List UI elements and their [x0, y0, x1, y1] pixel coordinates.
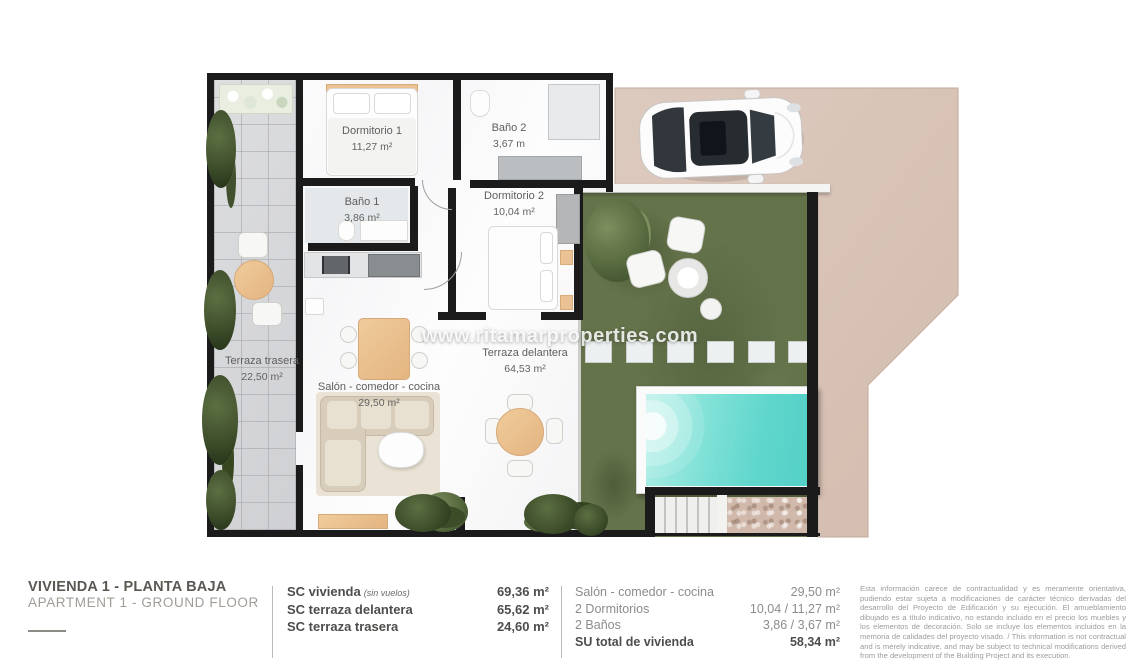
room-area: 3,86 m²: [322, 211, 402, 227]
room-area: 11,27 m²: [312, 140, 432, 156]
wall-bath2-dorm2: [470, 180, 613, 188]
room-area: 10,04 m²: [454, 205, 574, 221]
toilet: [470, 90, 490, 117]
plant: [206, 110, 236, 188]
row-label: 2 Dormitorios: [575, 602, 649, 616]
row-label: SC terraza delantera: [287, 602, 413, 617]
stepping-stone: [707, 341, 734, 363]
plan-title-en: APARTMENT 1 - GROUND FLOOR: [28, 595, 259, 610]
room-name: Salón - comedor - cocina: [299, 380, 459, 396]
watermark: www.ritamarproperties.com: [420, 325, 700, 348]
plant: [204, 270, 236, 350]
pillow: [540, 270, 553, 302]
garden-plant: [574, 504, 608, 536]
car-top-view: [638, 87, 806, 188]
row-value: 10,04 / 11,27 m²: [750, 602, 840, 616]
patio-table: [496, 408, 544, 456]
stepping-stone: [748, 341, 775, 363]
floor-plan-page: Dormitorio 1 11,27 m² Baño 2 3,67 m Dorm…: [0, 0, 1130, 665]
swimming-pool: [646, 394, 808, 486]
plant: [206, 470, 236, 530]
row-value: 24,60 m²: [497, 619, 549, 634]
room-label-bano-2: Baño 2 3,67 m: [469, 121, 549, 152]
exterior-steps: [655, 497, 717, 533]
shower: [548, 84, 600, 140]
room-name: Baño 1: [322, 195, 402, 211]
patio-chair: [546, 418, 563, 444]
row-note: (sin vuelos): [364, 588, 410, 598]
wall-dorm1-right: [453, 80, 461, 180]
room-label-salon: Salón - comedor - cocina 29,50 m²: [299, 380, 459, 411]
legal-disclaimer: Esta información carece de contractualid…: [860, 584, 1126, 663]
row-value: 58,34 m²: [790, 635, 840, 649]
plant: [524, 494, 582, 534]
footer-divider: [561, 586, 562, 658]
room-label-bano-1: Baño 1 3,86 m²: [322, 195, 402, 226]
room-name: Dormitorio 1: [312, 124, 432, 140]
table-row: 2 Dormitorios 10,04 / 11,27 m²: [575, 602, 840, 619]
info-footer: VIVIENDA 1 - PLANTA BAJA APARTMENT 1 - G…: [0, 575, 1130, 665]
title-underline: [28, 630, 66, 632]
row-value: 29,50 m²: [791, 585, 840, 599]
table-row: Salón - comedor - cocina 29,50 m²: [575, 585, 840, 602]
table-row: SC terraza trasera 24,60 m²: [287, 619, 549, 637]
wall-bath1-bottom: [308, 243, 412, 251]
room-label-terraza-delantera: Terraza delantera 64,53 m²: [455, 346, 595, 377]
table-row-total: SU total de vivienda 58,34 m²: [575, 635, 840, 652]
wall-terrace-interior-b: [296, 465, 303, 530]
wall-steps-frame-top: [645, 487, 820, 495]
dining-chair: [340, 352, 357, 369]
terrace-chair: [238, 232, 268, 258]
garden-stool: [700, 298, 722, 320]
row-label: SC vivienda(sin vuelos): [287, 584, 410, 599]
pergola-beam: [578, 184, 830, 193]
plant: [202, 375, 238, 465]
steps-gravel-divider: [717, 495, 727, 533]
footer-divider: [272, 586, 273, 658]
room-name: Baño 2: [469, 121, 549, 137]
room-name: Terraza trasera: [207, 354, 317, 370]
garden-table: [668, 258, 708, 298]
coffee-table: [378, 432, 424, 468]
wall-dorm1-bottom: [303, 178, 415, 186]
room-area: 64,53 m²: [455, 362, 595, 378]
bath-vanity: [498, 156, 582, 180]
patio-chair: [507, 460, 533, 477]
room-name: Terraza delantera: [455, 346, 595, 362]
stove: [322, 256, 350, 274]
wall-garden-right: [807, 192, 818, 537]
terrace-chair: [252, 302, 282, 326]
plan-title-es: VIVIENDA 1 - PLANTA BAJA: [28, 579, 226, 595]
room-label-dormitorio-2: Dormitorio 2 10,04 m²: [454, 189, 574, 220]
wall-right-top: [606, 73, 613, 192]
dining-chair: [340, 326, 357, 343]
pillow: [333, 93, 370, 114]
row-value: 65,62 m²: [497, 602, 549, 617]
garden-armchair: [665, 215, 706, 255]
row-label: Salón - comedor - cocina: [575, 585, 714, 599]
dining-table: [358, 318, 410, 380]
pillow: [540, 232, 553, 264]
sideboard: [318, 514, 388, 529]
kitchen-cabinet: [368, 254, 420, 277]
room-label-dormitorio-1: Dormitorio 1 11,27 m²: [312, 124, 432, 155]
row-label: SC terraza trasera: [287, 619, 398, 634]
wall-dorm2-bottom-left: [438, 312, 486, 320]
row-value: 69,36 m²: [497, 584, 549, 599]
room-area: 29,50 m²: [299, 396, 459, 412]
round-table: [234, 260, 274, 300]
wall-bath1-right: [410, 186, 418, 251]
wall-dorm2-bottom-right: [541, 312, 583, 320]
table-row: SC terraza delantera 65,62 m²: [287, 602, 549, 620]
nightstand: [560, 250, 573, 265]
nightstand: [560, 295, 573, 310]
plant: [395, 494, 451, 532]
sofa-cushion: [325, 440, 361, 486]
pillow: [374, 93, 411, 114]
wall-top: [207, 73, 613, 80]
dining-chair: [411, 352, 428, 369]
gravel-patch: [727, 497, 807, 533]
kitchen-appliance: [305, 298, 324, 315]
built-surface-table: SC vivienda(sin vuelos) 69,36 m² SC terr…: [287, 584, 549, 637]
row-label: 2 Baños: [575, 618, 621, 632]
table-row: SC vivienda(sin vuelos) 69,36 m²: [287, 584, 549, 602]
wall-steps-bottom-edge: [645, 533, 820, 536]
flower-planter: [219, 84, 293, 114]
row-label: SU total de vivienda: [575, 635, 694, 649]
table-row: 2 Baños 3,86 / 3,67 m²: [575, 618, 840, 635]
useful-surface-table: Salón - comedor - cocina 29,50 m² 2 Dorm…: [575, 585, 840, 651]
row-value: 3,86 / 3,67 m²: [763, 618, 840, 632]
room-name: Dormitorio 2: [454, 189, 574, 205]
room-area: 3,67 m: [469, 137, 549, 153]
